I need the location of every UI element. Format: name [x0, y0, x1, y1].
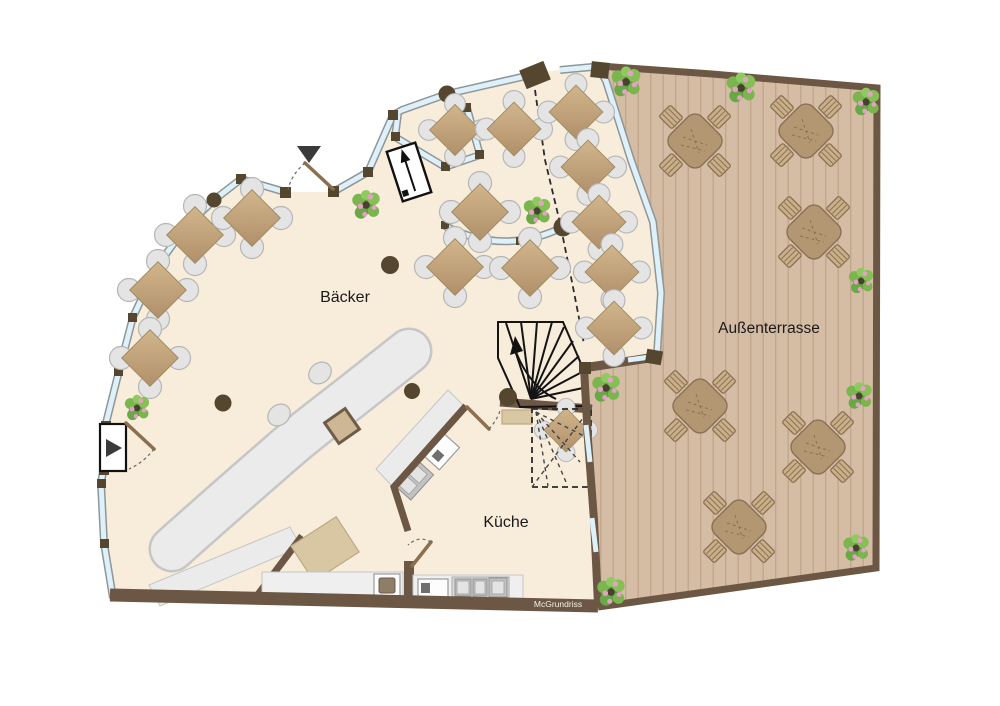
terrace-table — [782, 411, 854, 483]
floorplan-drawing: Bäcker Küche Außenterrasse McGrundriss — [0, 0, 1000, 706]
plant — [612, 66, 641, 96]
plant — [597, 577, 625, 606]
cooktop — [418, 579, 448, 598]
floorplan-page: Bäcker Küche Außenterrasse McGrundriss — [0, 0, 1000, 706]
door-leaf — [305, 163, 333, 189]
room-label-terrasse: Außenterrasse — [718, 320, 820, 337]
oven — [374, 574, 400, 597]
plant — [352, 190, 380, 219]
double-sink — [452, 577, 509, 598]
terrace-table — [659, 105, 731, 177]
entrance-arrow-icon — [297, 146, 321, 163]
watermark: McGrundriss — [534, 599, 582, 609]
room-label-baecker: Bäcker — [320, 289, 370, 306]
terrace-table — [664, 370, 736, 442]
terrace-table — [770, 95, 842, 167]
sideboard — [502, 410, 532, 424]
column — [207, 193, 222, 208]
terrace-table — [703, 491, 775, 563]
plant — [727, 72, 756, 102]
plant — [125, 395, 149, 420]
plant — [853, 88, 879, 116]
room-label-kueche: Küche — [483, 514, 528, 531]
plant — [849, 268, 873, 293]
plant — [846, 382, 871, 408]
terrace-table — [778, 196, 850, 268]
plant — [843, 534, 868, 560]
door-swing — [288, 163, 305, 190]
plant — [592, 373, 620, 402]
north-entrance-door — [288, 146, 333, 190]
plant — [524, 197, 550, 225]
